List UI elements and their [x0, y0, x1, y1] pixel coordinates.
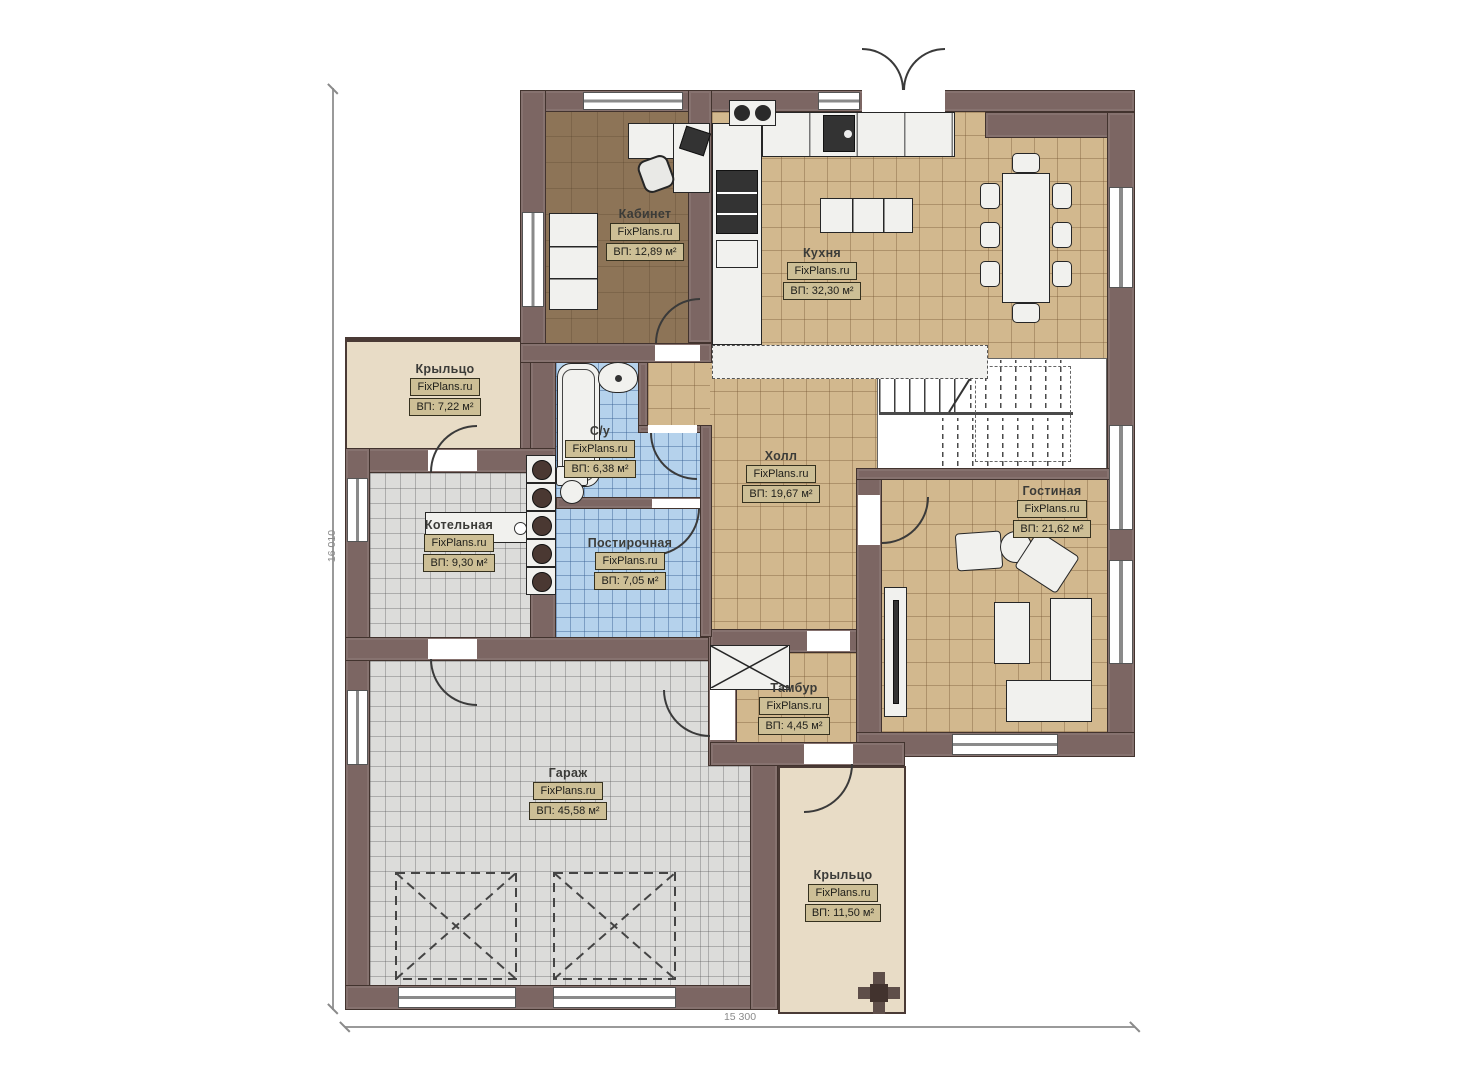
kitchen-island: [820, 198, 913, 233]
floor-plan-canvas: Кабинет FixPlans.ru ВП: 12,89 м² Кухня F…: [0, 0, 1473, 1080]
toilet-bowl: [560, 480, 584, 504]
dining-chair: [1012, 153, 1040, 173]
room-label-bathroom: С/у FixPlans.ru ВП: 6,38 м²: [540, 424, 660, 478]
room-name: Тамбур: [770, 681, 817, 695]
boiler-equipment: [526, 511, 556, 539]
room-label-laundry: Постирочная FixPlans.ru ВП: 7,05 м²: [570, 536, 690, 590]
bathroom-sink: [598, 362, 638, 393]
room-area: ВП: 7,05 м²: [594, 572, 665, 590]
boiler-equipment: [526, 483, 556, 511]
kitchen-sink-cabinet: [716, 240, 758, 268]
room-label-living: Гостиная FixPlans.ru ВП: 21,62 м²: [992, 484, 1112, 538]
dining-chair: [1052, 222, 1072, 248]
dining-table: [1002, 173, 1050, 303]
hall-living-door-opening: [858, 495, 880, 545]
room-name: С/у: [590, 424, 610, 438]
room-brand: FixPlans.ru: [565, 440, 634, 458]
kitchen-bar-counter: [712, 345, 988, 379]
stairs-walkline: [975, 366, 1071, 462]
room-label-vestibule: Тамбур FixPlans.ru ВП: 4,45 м²: [734, 681, 854, 735]
room-brand: FixPlans.ru: [533, 782, 602, 800]
burner-icon: [734, 105, 750, 121]
room-brand: FixPlans.ru: [808, 884, 877, 902]
boiler-equipment: [526, 567, 556, 595]
room-brand: FixPlans.ru: [595, 552, 664, 570]
garage-floor-ext: [708, 766, 750, 985]
room-label-porch-top: Крыльцо FixPlans.ru ВП: 7,22 м²: [385, 362, 505, 416]
room-name: Крыльцо: [416, 362, 475, 376]
room-label-hall: Холл FixPlans.ru ВП: 19,67 м²: [721, 449, 841, 503]
room-name: Гараж: [549, 766, 588, 780]
room-brand: FixPlans.ru: [746, 465, 815, 483]
room-brand: FixPlans.ru: [1017, 500, 1086, 518]
room-area: ВП: 11,50 м²: [805, 904, 881, 922]
coffee-table: [994, 602, 1030, 664]
wall-stairs-bottom: [856, 468, 1110, 480]
kitchen-cooktop: [729, 100, 776, 126]
room-label-porch-bottom: Крыльцо FixPlans.ru ВП: 11,50 м²: [783, 868, 903, 922]
room-area: ВП: 6,38 м²: [564, 460, 635, 478]
room-area: ВП: 4,45 м²: [758, 717, 829, 735]
living-right-window-1: [1109, 425, 1133, 530]
room-name: Холл: [765, 449, 798, 463]
dimension-width-label: 15 300: [700, 1011, 780, 1023]
parking-space-1: [395, 872, 517, 980]
room-area: ВП: 7,22 м²: [409, 398, 480, 416]
room-area: ВП: 32,30 м²: [783, 282, 860, 300]
kitchen-sink: [823, 115, 855, 152]
dimension-height-label: 16 010: [326, 506, 338, 586]
faucet-icon: [844, 130, 852, 138]
room-name: Кухня: [803, 246, 841, 260]
burner-icon: [755, 105, 771, 121]
room-brand: FixPlans.ru: [410, 378, 479, 396]
garage-gate-1: [398, 987, 516, 1008]
entrance-opening: [862, 90, 945, 112]
vestibule-garage-door-opening: [710, 690, 735, 740]
parking-x-icon: [553, 872, 676, 980]
dining-chair: [1012, 303, 1040, 323]
room-brand: FixPlans.ru: [610, 223, 679, 241]
boiler-equipment: [526, 539, 556, 567]
sofa-bottom: [1006, 680, 1092, 722]
room-area: ВП: 45,58 м²: [529, 802, 606, 820]
hall-niche-floor: [648, 362, 710, 425]
room-area: ВП: 12,89 м²: [606, 243, 683, 261]
room-brand: FixPlans.ru: [424, 534, 493, 552]
room-brand: FixPlans.ru: [759, 697, 828, 715]
kitchen-right-window: [1109, 187, 1133, 288]
porch-drain-marker: [858, 972, 900, 1014]
kitchen-oven-stack: [716, 170, 758, 234]
cross-center: [870, 984, 888, 1002]
dining-chair: [980, 261, 1000, 287]
garage-left-window: [347, 690, 368, 765]
kitchen-counter-top: [762, 112, 955, 157]
laundry-door-opening: [652, 499, 700, 508]
dining-chair: [1052, 261, 1072, 287]
room-brand: FixPlans.ru: [787, 262, 856, 280]
wall-garage-top: [345, 637, 737, 661]
tank-icon: [532, 488, 552, 508]
wall-garage-right: [750, 742, 778, 1010]
room-area: ВП: 21,62 м²: [1013, 520, 1090, 538]
room-name: Крыльцо: [814, 868, 873, 882]
tank-icon: [532, 572, 552, 592]
room-area: ВП: 9,30 м²: [423, 554, 494, 572]
porch-top-edge: [345, 337, 520, 342]
drain-icon: [615, 375, 622, 382]
living-bottom-window: [952, 734, 1058, 755]
room-label-office: Кабинет FixPlans.ru ВП: 12,89 м²: [585, 207, 705, 261]
wall-niche-left: [638, 362, 648, 432]
room-name: Кабинет: [619, 207, 672, 221]
tv: [893, 600, 899, 704]
hall-vestibule-opening: [807, 631, 850, 651]
room-name: Постирочная: [588, 536, 673, 550]
kitchen-top-window: [818, 92, 860, 110]
entrance-right-door-arc: [903, 48, 945, 90]
kitchen-counter-left: [712, 123, 762, 345]
dining-chair: [980, 222, 1000, 248]
tank-icon: [532, 516, 552, 536]
room-label-kitchen: Кухня FixPlans.ru ВП: 32,30 м²: [762, 246, 882, 300]
room-area: ВП: 19,67 м²: [742, 485, 819, 503]
vestibule-porch-door-opening: [804, 744, 853, 764]
office-door-opening: [655, 345, 700, 361]
room-name: Гостиная: [1023, 484, 1082, 498]
room-label-boiler: Котельная FixPlans.ru ВП: 9,30 м²: [399, 518, 519, 572]
parking-space-2: [553, 872, 676, 980]
dining-chair: [980, 183, 1000, 209]
boiler-garage-door-opening: [428, 639, 477, 659]
boiler-left-window: [347, 478, 368, 542]
dining-chair: [1052, 183, 1072, 209]
garage-gate-2: [553, 987, 676, 1008]
office-left-window: [522, 212, 544, 307]
wall-laundry-right: [700, 425, 712, 637]
room-label-garage: Гараж FixPlans.ru ВП: 45,58 м²: [508, 766, 628, 820]
tank-icon: [532, 544, 552, 564]
room-name: Котельная: [425, 518, 493, 532]
dimension-line-horizontal: [345, 1026, 1135, 1028]
living-right-window-2: [1109, 560, 1133, 664]
entrance-left-door-arc: [862, 48, 904, 90]
parking-x-icon: [395, 872, 517, 980]
office-top-window: [583, 92, 683, 110]
